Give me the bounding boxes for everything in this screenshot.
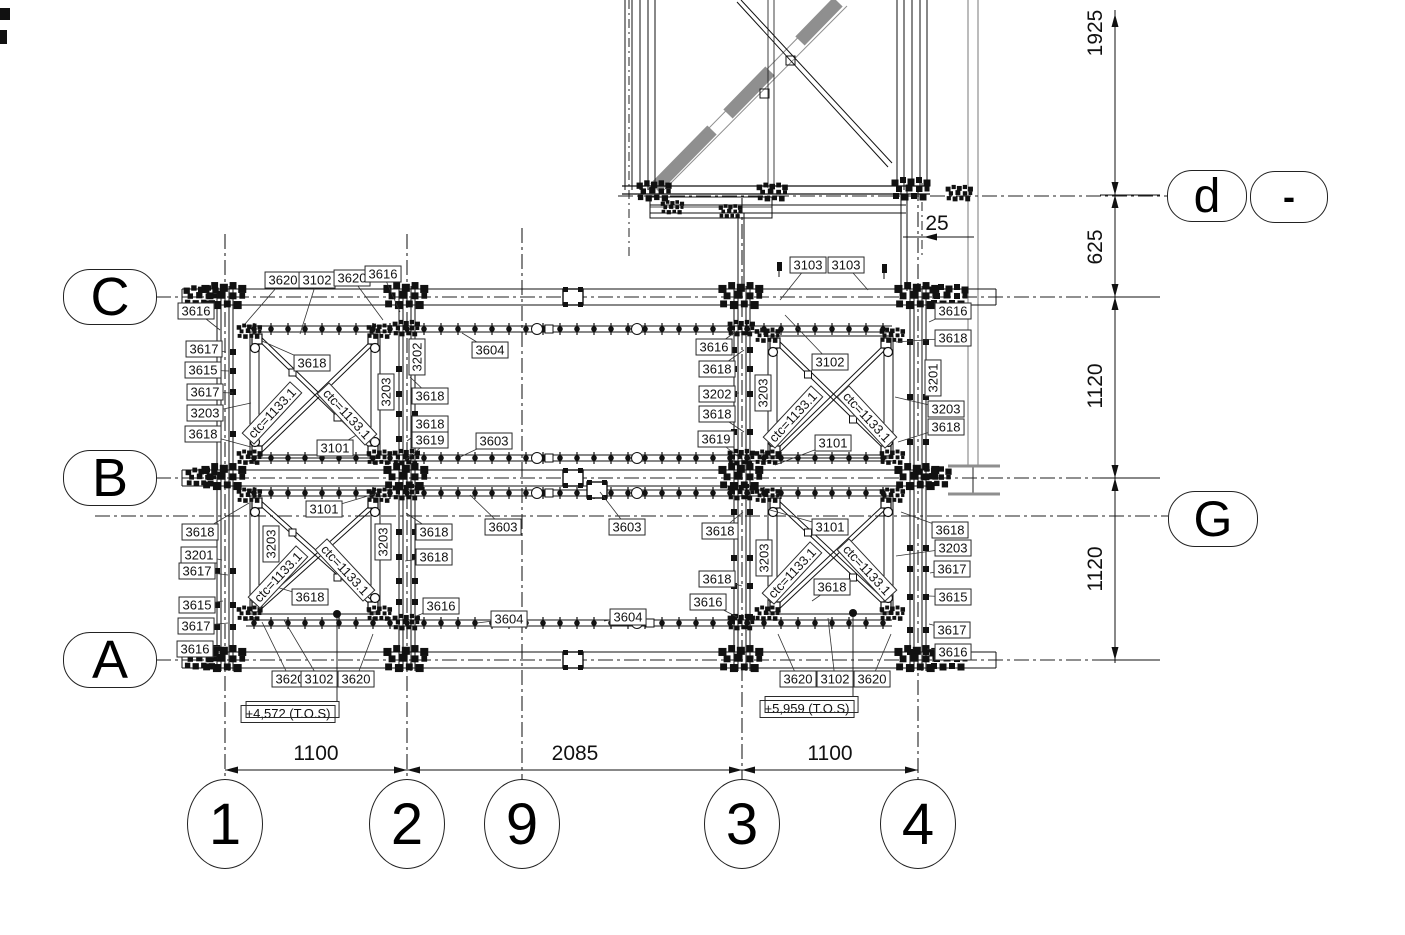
part-label: 3102: [817, 671, 854, 688]
part-label: 3620: [780, 671, 817, 688]
elevation-note: +4,572 (T.O.S): [241, 705, 336, 723]
part-label: 3615: [935, 589, 972, 606]
part-label: 3101: [317, 440, 354, 457]
part-label: 3603: [485, 519, 522, 536]
grid-bubble--: -: [1250, 171, 1328, 223]
part-label: 3101: [815, 435, 852, 452]
part-label: 3616: [935, 644, 972, 661]
part-label: 3618: [699, 406, 736, 423]
part-label: 3616: [177, 641, 214, 658]
part-label: 3618: [702, 523, 739, 540]
part-label: 3201: [181, 547, 218, 564]
grid-bubble-2: 2: [369, 779, 445, 869]
dimension-label: 1925: [1084, 10, 1108, 57]
grid-bubble-B: B: [63, 450, 157, 506]
part-label: 3617: [178, 618, 215, 635]
part-label: 3101: [812, 519, 849, 536]
grid-bubble-3: 3: [704, 779, 780, 869]
part-label: 3203: [928, 401, 965, 418]
part-label: 3201: [925, 360, 942, 397]
part-label: 3203: [935, 540, 972, 557]
framing-plan-sheet: 3620310236203616361636173615361732033618…: [0, 0, 1405, 935]
elevation-note: +5,959 (T.O.S): [760, 700, 855, 718]
dimension-label: 2085: [552, 742, 599, 766]
part-label: 3604: [610, 609, 647, 626]
part-label: 3616: [696, 339, 733, 356]
dimension-label-offset: 25: [925, 212, 948, 236]
part-label: 3620: [338, 671, 375, 688]
part-label: 3202: [699, 386, 736, 403]
part-label: 3618: [814, 579, 851, 596]
part-label: 3620: [265, 272, 302, 289]
part-label: 3103: [828, 257, 865, 274]
part-label: 3203: [756, 540, 773, 577]
part-label: 3604: [491, 611, 528, 628]
part-label: 3618: [928, 419, 965, 436]
part-label: 3618: [932, 522, 969, 539]
part-label: 3616: [935, 303, 972, 320]
part-label: 3615: [185, 362, 222, 379]
dimension-label: 1120: [1084, 546, 1108, 591]
part-label: 3617: [934, 561, 971, 578]
part-label: 3618: [416, 524, 453, 541]
grid-bubble-G: G: [1168, 491, 1258, 547]
part-label: 3203: [378, 374, 395, 411]
part-label: 3618: [294, 355, 331, 372]
part-label: 3102: [812, 354, 849, 371]
grid-bubble-1: 1: [187, 779, 263, 869]
part-label: 3102: [301, 671, 338, 688]
part-label: 3102: [299, 272, 336, 289]
part-label: 3615: [179, 597, 216, 614]
part-label: 3618: [412, 388, 449, 405]
dimension-label: 1100: [807, 742, 852, 766]
part-label: 3616: [423, 598, 460, 615]
part-label: 3616: [690, 594, 727, 611]
part-label: 3617: [187, 384, 224, 401]
part-label: 3202: [409, 339, 426, 376]
part-label: 3618: [699, 361, 736, 378]
part-label: 3203: [187, 405, 224, 422]
grid-bubble-4: 4: [880, 779, 956, 869]
part-label: 3603: [476, 433, 513, 450]
part-label: 3101: [306, 501, 343, 518]
part-label: 3203: [755, 375, 772, 412]
grid-bubble-C: C: [63, 269, 157, 325]
part-label: 3203: [375, 524, 392, 561]
dimension-label: 1120: [1084, 363, 1108, 408]
part-label: 3618: [412, 416, 449, 433]
part-label: 3619: [698, 431, 735, 448]
part-label: 3604: [472, 342, 509, 359]
part-label: 3617: [179, 563, 216, 580]
part-label: 3618: [182, 524, 219, 541]
grid-bubble-A: A: [63, 632, 157, 688]
part-label: 3616: [365, 266, 402, 283]
part-label: 3618: [699, 571, 736, 588]
part-label: 3103: [790, 257, 827, 274]
part-label: 3618: [292, 589, 329, 606]
part-label: 3618: [185, 426, 222, 443]
part-label: 3618: [935, 330, 972, 347]
part-label: 3616: [178, 303, 215, 320]
part-label: 3618: [416, 549, 453, 566]
part-label: 3617: [186, 341, 223, 358]
part-label: 3203: [263, 526, 280, 563]
part-label: 3603: [609, 519, 646, 536]
dimension-label: 1100: [293, 742, 338, 766]
dimension-label: 625: [1084, 229, 1108, 264]
part-label: 3620: [854, 671, 891, 688]
part-label: 3619: [412, 432, 449, 449]
part-label: 3617: [934, 622, 971, 639]
grid-bubble-d: d: [1167, 170, 1247, 222]
grid-bubble-9: 9: [484, 779, 560, 869]
